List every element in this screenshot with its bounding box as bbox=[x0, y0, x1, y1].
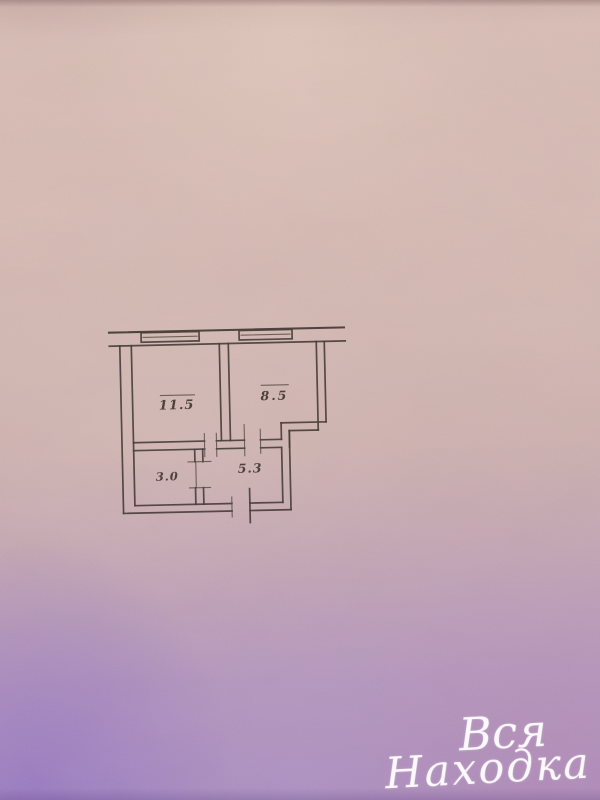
photo-blotch-overlay bbox=[0, 0, 600, 800]
photo-top-edge-shade bbox=[0, 0, 600, 7]
floor-plan-photo: 11.5 8.5 3.0 5.3 Вся Находка bbox=[0, 0, 600, 800]
watermark: Вся Находка bbox=[382, 710, 591, 791]
watermark-line-2: Находка bbox=[384, 746, 591, 791]
floor-plan: 11.5 8.5 3.0 5.3 bbox=[0, 0, 600, 800]
